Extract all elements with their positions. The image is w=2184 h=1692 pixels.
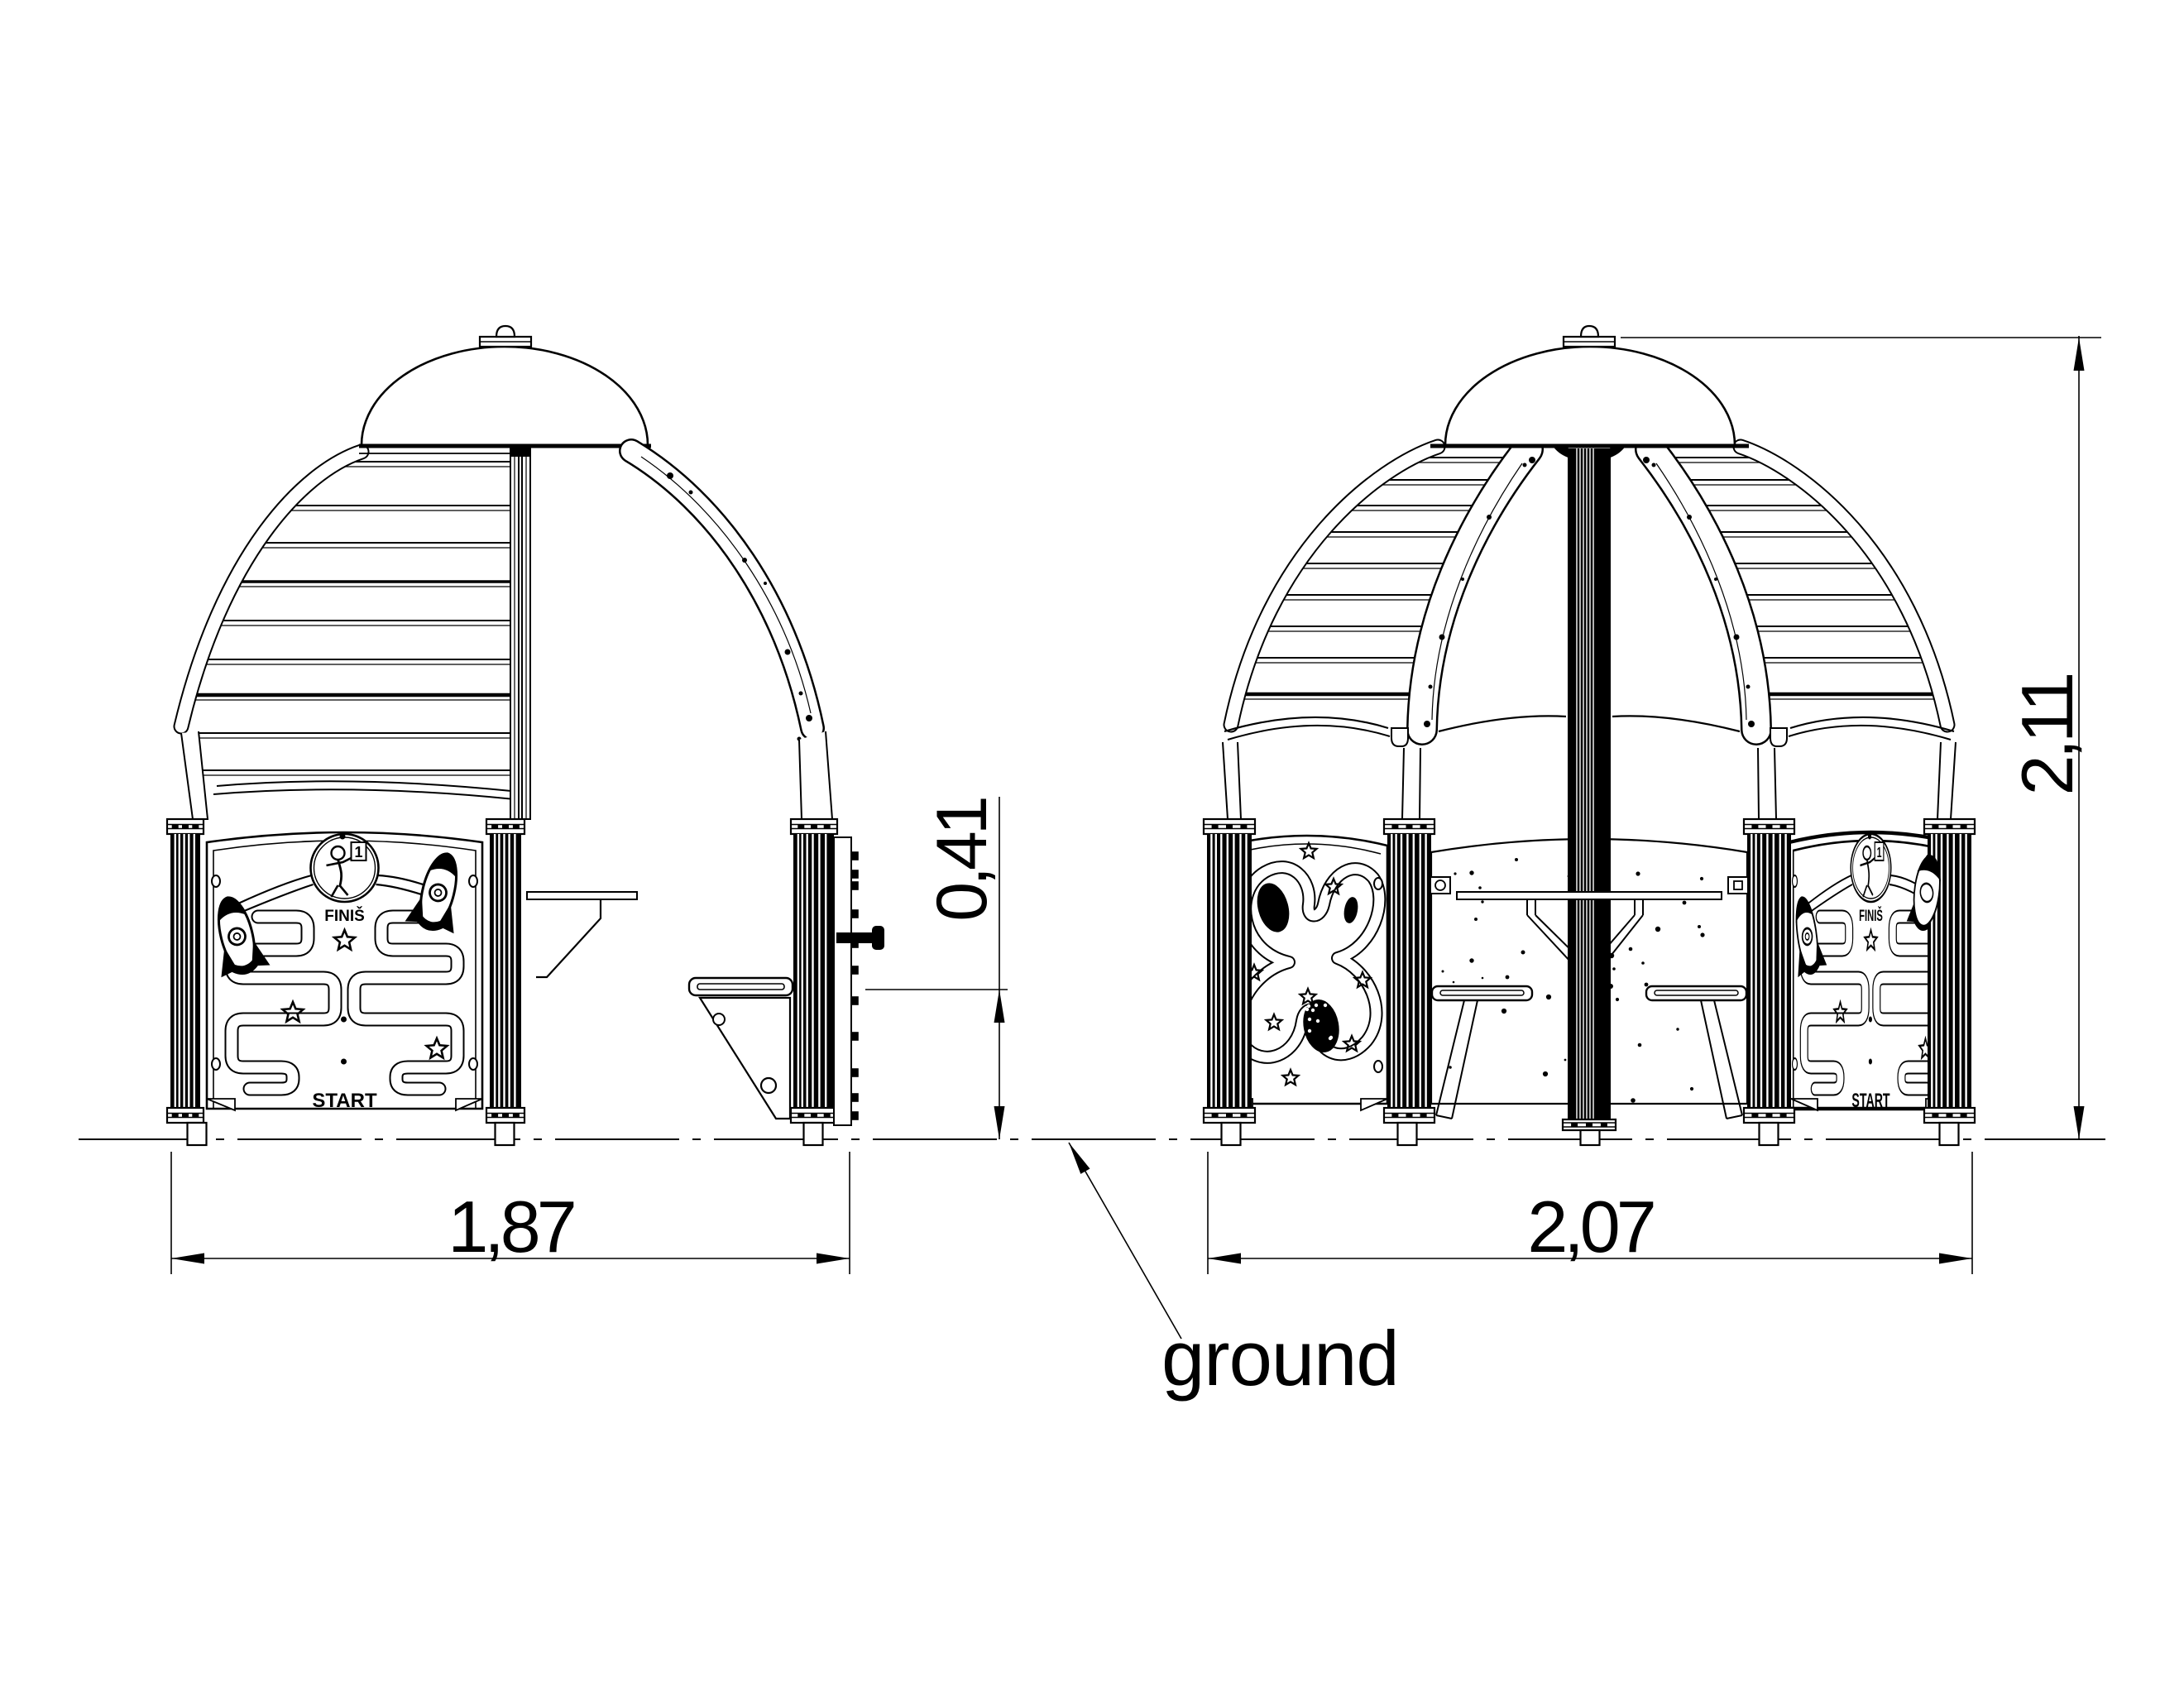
svg-text:ground: ground: [1161, 1315, 1399, 1402]
svg-text:FINIŠ: FINIŠ: [324, 907, 365, 925]
svg-text:START: START: [312, 1090, 377, 1112]
svg-text:2,07: 2,07: [1527, 1186, 1653, 1268]
svg-text:1: 1: [354, 844, 362, 860]
svg-text:1: 1: [1877, 845, 1882, 860]
svg-text:2,11: 2,11: [2006, 675, 2088, 796]
svg-text:START: START: [1851, 1090, 1889, 1112]
svg-text:FINIŠ: FINIŠ: [1859, 906, 1883, 925]
svg-text:0,41: 0,41: [922, 798, 1002, 922]
svg-text:1,87: 1,87: [448, 1186, 573, 1268]
